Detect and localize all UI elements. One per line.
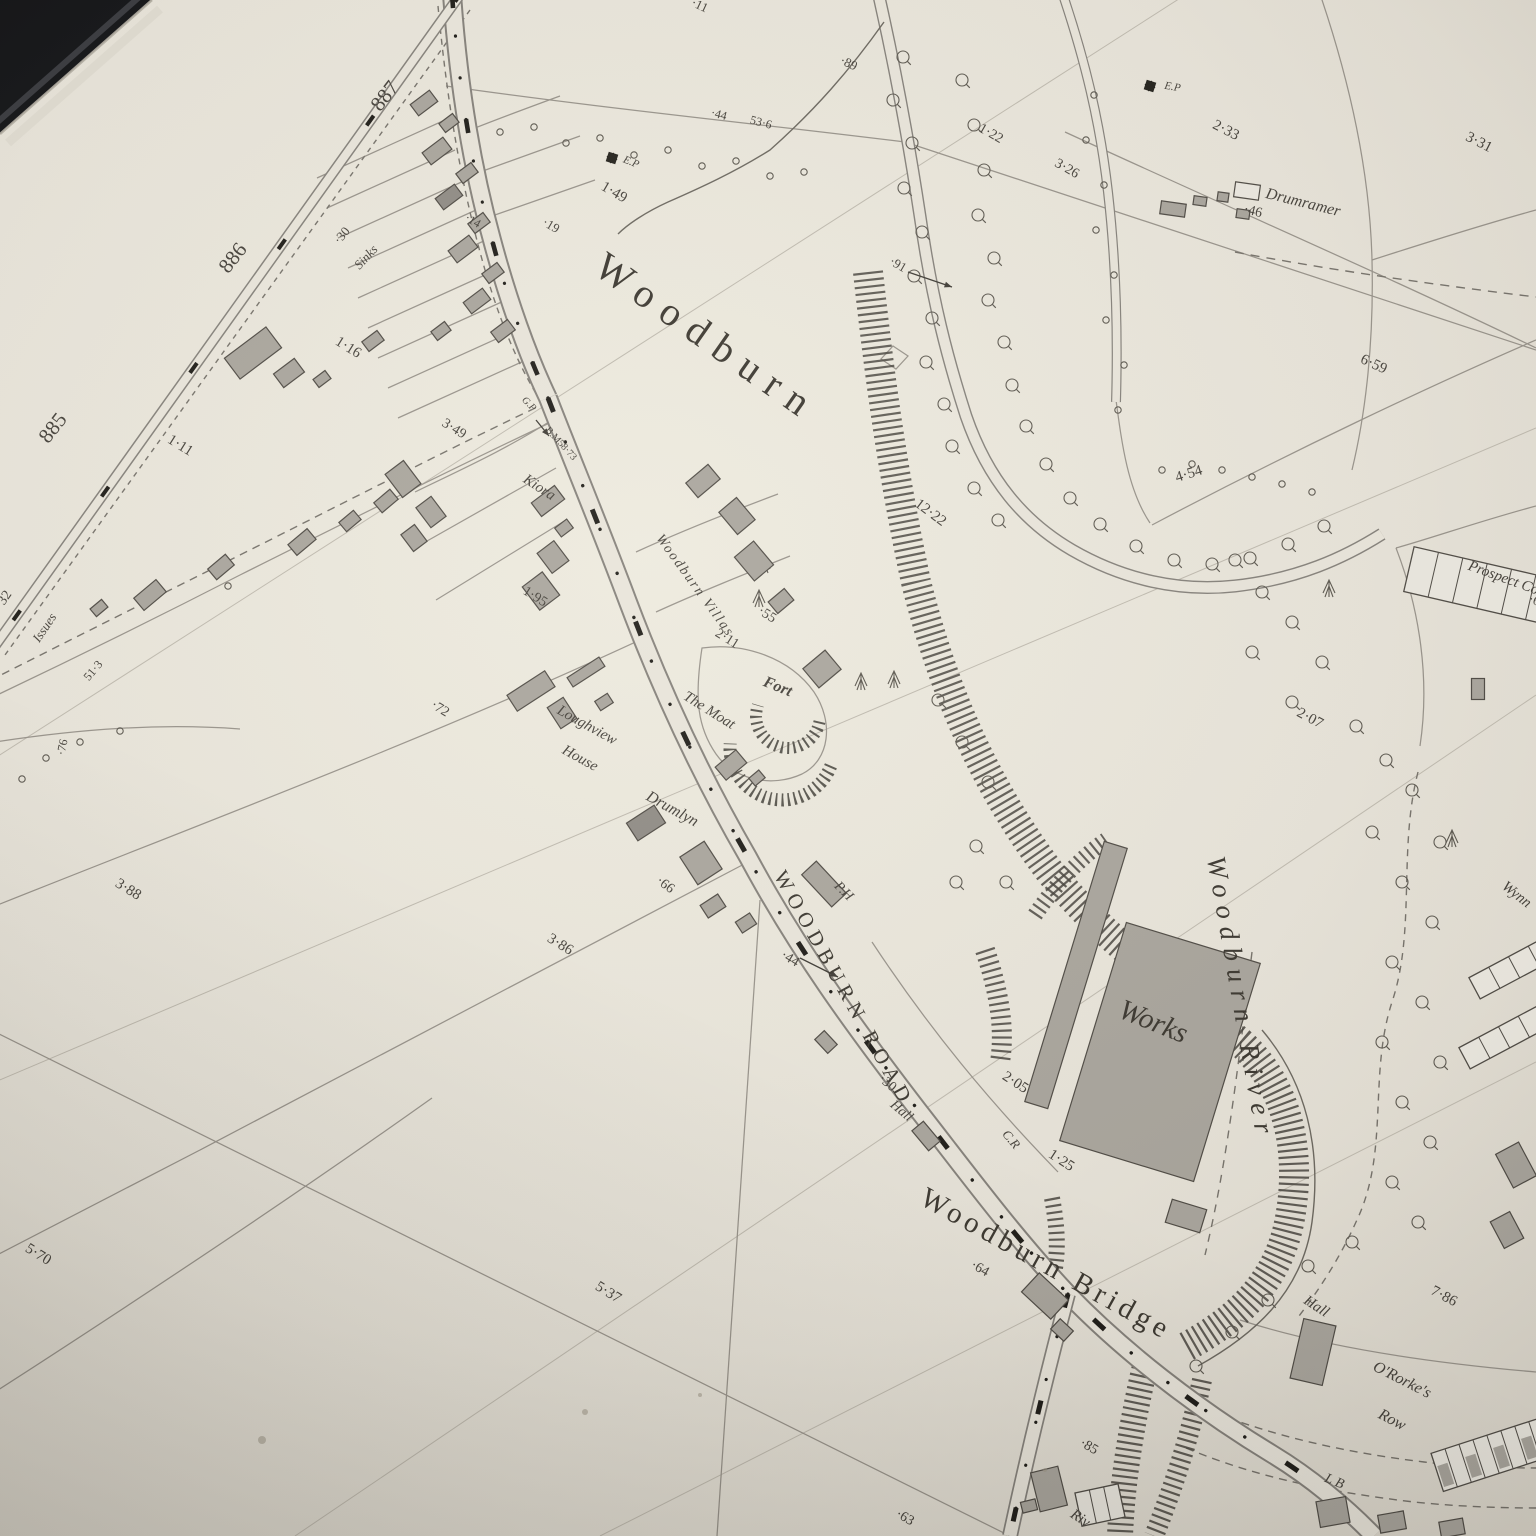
paper-speck: [258, 1436, 266, 1444]
building: [1378, 1511, 1407, 1533]
paper-speck: [1043, 1468, 1047, 1472]
building: [1472, 679, 1485, 700]
building: [1234, 182, 1261, 200]
map-canvas: 887886885WoodburnWOODBURN ROADWoodburn B…: [0, 0, 1536, 1536]
building: [1217, 192, 1229, 202]
building: [1193, 196, 1207, 207]
paper-speck: [582, 1409, 588, 1415]
building: [1160, 201, 1187, 217]
building: [1316, 1497, 1350, 1528]
photo-of-paper-map: 887886885WoodburnWOODBURN ROADWoodburn B…: [0, 0, 1536, 1536]
paper-speck: [698, 1393, 702, 1397]
